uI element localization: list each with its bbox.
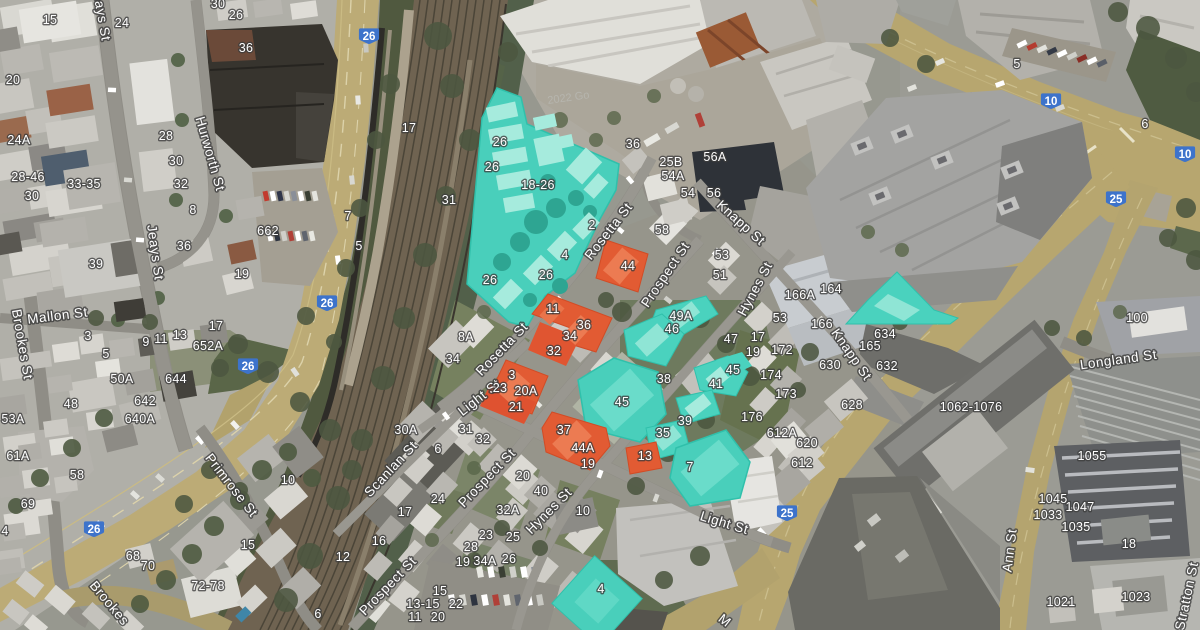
svg-text:18: 18 xyxy=(1122,537,1137,551)
svg-text:612A: 612A xyxy=(767,426,798,440)
svg-text:1047: 1047 xyxy=(1065,500,1094,514)
svg-text:23: 23 xyxy=(493,381,508,395)
svg-text:26: 26 xyxy=(483,273,498,287)
svg-text:13-15: 13-15 xyxy=(406,597,439,611)
svg-text:15: 15 xyxy=(43,13,58,27)
svg-text:34: 34 xyxy=(446,352,461,366)
svg-text:10: 10 xyxy=(1179,149,1192,161)
svg-text:47: 47 xyxy=(724,332,739,346)
svg-text:5: 5 xyxy=(102,347,109,361)
svg-text:17: 17 xyxy=(751,330,766,344)
svg-text:36: 36 xyxy=(177,239,192,253)
svg-text:166A: 166A xyxy=(785,288,816,302)
svg-text:69: 69 xyxy=(21,497,36,511)
svg-text:17: 17 xyxy=(209,319,224,333)
svg-text:628: 628 xyxy=(841,398,863,412)
svg-text:5: 5 xyxy=(1013,57,1020,71)
svg-text:1062-1076: 1062-1076 xyxy=(940,400,1002,414)
svg-text:26: 26 xyxy=(88,524,101,536)
svg-text:4: 4 xyxy=(1,524,8,538)
svg-text:32A: 32A xyxy=(496,503,520,517)
svg-text:100: 100 xyxy=(1126,311,1148,325)
svg-text:56A: 56A xyxy=(703,150,727,164)
svg-text:19: 19 xyxy=(456,555,471,569)
svg-text:24: 24 xyxy=(431,492,446,506)
svg-text:2: 2 xyxy=(588,218,595,232)
svg-text:166: 166 xyxy=(811,317,833,331)
svg-text:72-78: 72-78 xyxy=(191,579,224,593)
svg-text:4: 4 xyxy=(561,248,568,262)
svg-text:1023: 1023 xyxy=(1121,590,1150,604)
svg-text:25: 25 xyxy=(1110,194,1123,206)
svg-text:34: 34 xyxy=(563,329,578,343)
svg-text:18-26: 18-26 xyxy=(521,178,554,192)
svg-text:620: 620 xyxy=(796,436,818,450)
svg-text:28-46: 28-46 xyxy=(11,170,44,184)
svg-text:4: 4 xyxy=(597,582,604,596)
svg-text:39: 39 xyxy=(89,257,104,271)
svg-text:30: 30 xyxy=(211,0,226,11)
svg-text:37: 37 xyxy=(557,423,572,437)
svg-text:54A: 54A xyxy=(661,169,685,183)
svg-text:31: 31 xyxy=(442,193,457,207)
svg-text:53: 53 xyxy=(773,311,788,325)
svg-text:70: 70 xyxy=(141,559,156,573)
svg-text:54: 54 xyxy=(681,186,696,200)
svg-text:1035: 1035 xyxy=(1061,520,1090,534)
svg-text:33-35: 33-35 xyxy=(67,177,100,191)
svg-text:41: 41 xyxy=(709,377,724,391)
svg-text:36: 36 xyxy=(239,41,254,55)
svg-text:1021: 1021 xyxy=(1046,595,1075,609)
svg-text:50A: 50A xyxy=(110,372,134,386)
svg-text:1033: 1033 xyxy=(1033,508,1062,522)
svg-text:24A: 24A xyxy=(7,133,31,147)
svg-text:30: 30 xyxy=(25,189,40,203)
svg-text:40: 40 xyxy=(534,484,549,498)
svg-text:20: 20 xyxy=(431,610,446,624)
svg-text:640A: 640A xyxy=(125,412,156,426)
svg-text:173: 173 xyxy=(775,387,797,401)
svg-text:44: 44 xyxy=(621,259,636,273)
svg-text:25B: 25B xyxy=(659,155,682,169)
svg-text:32: 32 xyxy=(476,432,491,446)
svg-text:3: 3 xyxy=(508,368,515,382)
svg-text:26: 26 xyxy=(363,31,376,43)
svg-text:19: 19 xyxy=(581,457,596,471)
svg-text:652A: 652A xyxy=(193,339,224,353)
svg-text:35: 35 xyxy=(656,426,671,440)
svg-text:8: 8 xyxy=(189,203,196,217)
svg-text:23: 23 xyxy=(479,528,494,542)
svg-text:45: 45 xyxy=(615,395,630,409)
svg-text:36: 36 xyxy=(626,137,641,151)
svg-text:165: 165 xyxy=(859,339,881,353)
svg-text:11: 11 xyxy=(408,610,422,624)
svg-text:20: 20 xyxy=(516,469,531,483)
svg-text:7: 7 xyxy=(686,460,693,474)
svg-text:164: 164 xyxy=(820,282,842,296)
svg-text:26: 26 xyxy=(539,268,554,282)
svg-text:11: 11 xyxy=(546,302,560,316)
svg-text:5: 5 xyxy=(355,239,362,253)
svg-text:10: 10 xyxy=(576,504,591,518)
svg-text:26: 26 xyxy=(321,298,334,310)
svg-text:31: 31 xyxy=(459,422,474,436)
svg-text:20: 20 xyxy=(6,73,21,87)
svg-text:68: 68 xyxy=(126,549,141,563)
svg-text:32: 32 xyxy=(547,344,562,358)
svg-text:8A: 8A xyxy=(458,330,474,344)
svg-text:32: 32 xyxy=(174,177,189,191)
svg-text:17: 17 xyxy=(402,121,417,135)
svg-text:25: 25 xyxy=(506,530,521,544)
svg-text:19: 19 xyxy=(235,267,250,281)
svg-text:11: 11 xyxy=(154,332,168,346)
svg-text:176: 176 xyxy=(741,410,763,424)
svg-text:36: 36 xyxy=(577,318,592,332)
svg-text:17: 17 xyxy=(398,505,413,519)
svg-text:642: 642 xyxy=(134,394,156,408)
svg-text:1055: 1055 xyxy=(1077,449,1106,463)
svg-text:630: 630 xyxy=(819,358,841,372)
svg-text:612: 612 xyxy=(791,456,813,470)
svg-text:6: 6 xyxy=(314,607,321,621)
svg-text:6: 6 xyxy=(1141,117,1148,131)
svg-text:13: 13 xyxy=(638,449,653,463)
svg-text:1045: 1045 xyxy=(1038,492,1067,506)
svg-text:30: 30 xyxy=(169,154,184,168)
svg-text:9: 9 xyxy=(142,335,149,349)
svg-text:21: 21 xyxy=(509,400,524,414)
svg-text:15: 15 xyxy=(433,584,448,598)
svg-text:174: 174 xyxy=(760,368,782,382)
svg-text:26: 26 xyxy=(485,160,500,174)
svg-text:48: 48 xyxy=(64,397,79,411)
svg-text:46: 46 xyxy=(665,322,680,336)
svg-text:26: 26 xyxy=(229,8,244,22)
svg-text:7: 7 xyxy=(344,209,351,223)
svg-text:30A: 30A xyxy=(394,423,418,437)
svg-text:19: 19 xyxy=(746,345,761,359)
svg-text:10: 10 xyxy=(1045,96,1058,108)
svg-text:15: 15 xyxy=(241,538,256,552)
svg-text:44A: 44A xyxy=(571,441,595,455)
svg-text:49A: 49A xyxy=(669,309,693,323)
svg-text:28: 28 xyxy=(464,540,479,554)
svg-text:16: 16 xyxy=(372,534,387,548)
svg-text:26: 26 xyxy=(502,552,517,566)
svg-text:39: 39 xyxy=(678,414,693,428)
svg-text:12: 12 xyxy=(336,550,351,564)
svg-text:172: 172 xyxy=(771,343,793,357)
svg-text:644: 644 xyxy=(165,372,187,386)
svg-text:26: 26 xyxy=(493,135,508,149)
svg-text:45: 45 xyxy=(726,363,741,377)
svg-text:53A: 53A xyxy=(1,412,25,426)
svg-text:53: 53 xyxy=(715,248,730,262)
svg-text:51: 51 xyxy=(713,268,728,282)
svg-text:13: 13 xyxy=(173,328,188,342)
svg-text:3: 3 xyxy=(84,329,91,343)
svg-text:61A: 61A xyxy=(6,449,30,463)
svg-text:662: 662 xyxy=(257,224,279,238)
svg-text:25: 25 xyxy=(781,508,794,520)
svg-text:632: 632 xyxy=(876,359,898,373)
svg-text:24: 24 xyxy=(115,16,130,30)
svg-text:6: 6 xyxy=(434,442,441,456)
svg-text:58: 58 xyxy=(70,468,85,482)
svg-text:38: 38 xyxy=(657,372,672,386)
svg-text:26: 26 xyxy=(242,361,255,373)
svg-text:58: 58 xyxy=(655,223,670,237)
svg-text:20A: 20A xyxy=(514,384,538,398)
svg-text:28: 28 xyxy=(159,129,174,143)
svg-text:34A: 34A xyxy=(473,554,497,568)
svg-text:10: 10 xyxy=(281,473,296,487)
svg-text:22: 22 xyxy=(449,597,464,611)
svg-text:56: 56 xyxy=(707,186,722,200)
